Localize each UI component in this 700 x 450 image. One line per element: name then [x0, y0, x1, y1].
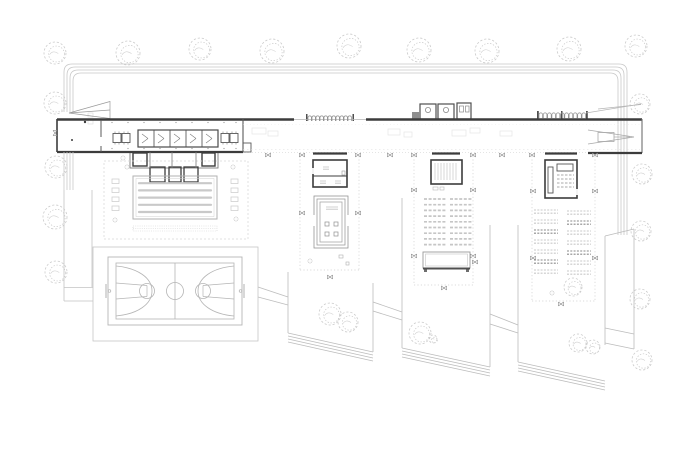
faint-furniture	[388, 129, 400, 135]
tree-canopy-icon	[49, 46, 65, 62]
table-dot-cluster	[327, 169, 328, 170]
plotC-steps	[402, 354, 490, 373]
tree-canopy-icon	[632, 350, 652, 370]
lounger	[112, 197, 119, 202]
tree	[586, 340, 600, 354]
plotD-steps	[518, 365, 605, 384]
plotC-steps	[402, 348, 490, 367]
tree-branch-icon	[569, 286, 576, 288]
table-dot-cluster	[337, 180, 338, 181]
hoop	[239, 290, 242, 293]
tree-canopy-icon	[342, 38, 359, 55]
table-dot-cluster	[336, 209, 337, 210]
three-point-arc	[198, 266, 234, 316]
shrub-icon	[307, 258, 313, 264]
reading-room-opening	[312, 215, 316, 226]
table-dot-cluster	[339, 180, 340, 181]
tree-canopy-icon	[414, 326, 430, 342]
tree-canopy-icon	[319, 303, 341, 325]
tree-branch-icon	[574, 342, 581, 344]
tree-canopy-icon	[635, 225, 649, 239]
rack-post	[586, 111, 588, 119]
tree	[189, 38, 211, 60]
column-dot	[159, 148, 160, 149]
dining-table	[122, 134, 130, 143]
bench-foot	[424, 270, 427, 273]
faint-furniture	[268, 131, 278, 136]
pavilion-fixture-circle	[443, 107, 448, 112]
tree	[429, 335, 437, 343]
table-dot-cluster	[324, 180, 325, 181]
table-dot-cluster	[330, 206, 331, 207]
table-dot-cluster	[334, 209, 335, 210]
tree-branch-icon	[122, 52, 132, 55]
table-dot-cluster	[326, 206, 327, 207]
column-dot	[223, 148, 224, 149]
column-dot	[207, 148, 208, 149]
kitchen-fixture	[142, 134, 148, 139]
tree-branch-icon	[325, 313, 334, 316]
kitchen-fixture	[174, 139, 180, 144]
table-dot-cluster	[328, 206, 329, 207]
table-dot-cluster	[325, 169, 326, 170]
grid-marker-icon	[470, 188, 475, 192]
tree-branch-icon	[51, 271, 60, 274]
tree-canopy-icon	[260, 39, 284, 63]
tree-branch-icon	[431, 339, 434, 340]
kitchen-fixture	[190, 134, 196, 139]
tree-canopy-icon	[342, 316, 356, 330]
plotD-steps	[518, 368, 605, 387]
tree	[338, 312, 358, 332]
tree-branch-icon	[50, 52, 59, 55]
grid-marker-icon	[355, 211, 360, 215]
entry-canopy-wedge	[69, 102, 110, 119]
tree-canopy-icon	[632, 164, 652, 184]
tree	[475, 39, 499, 63]
tree-canopy-icon	[50, 160, 66, 176]
tree-canopy-icon	[634, 293, 648, 307]
grid-marker-icon	[530, 189, 535, 193]
plotC-steps	[402, 351, 490, 370]
tree-canopy-icon	[338, 312, 358, 332]
tree-branch-icon	[343, 321, 351, 324]
entrance-pavilion	[438, 104, 454, 119]
lounger	[231, 206, 238, 211]
tree-branch-icon	[266, 50, 276, 53]
table-dot-cluster	[326, 209, 327, 210]
reading-room-inner	[320, 202, 342, 242]
tree-branch-icon	[195, 48, 204, 51]
kitchen-fixture	[158, 139, 164, 144]
faint-furniture	[470, 128, 480, 133]
tree-branch-icon	[51, 166, 60, 169]
tree-canopy-icon	[480, 43, 497, 60]
faint-furniture	[500, 131, 512, 136]
tree-branch-icon	[415, 332, 424, 335]
wc-block	[184, 167, 198, 182]
tree-canopy-icon	[43, 205, 67, 229]
tree	[43, 205, 67, 229]
grid-marker-icon	[387, 153, 392, 157]
court-key	[203, 297, 234, 300]
tree-canopy-icon	[409, 322, 431, 344]
tree-branch-icon	[481, 50, 491, 53]
table-dot-cluster	[327, 166, 328, 167]
tree-canopy-icon	[407, 38, 431, 62]
site-plan-drawing	[0, 0, 700, 450]
column-dot	[175, 122, 176, 123]
reading-table	[334, 232, 338, 236]
tree-canopy-icon	[564, 278, 582, 296]
reading-table	[334, 222, 338, 226]
yard-mark	[440, 187, 444, 190]
wc-block	[150, 167, 165, 182]
tree-canopy-icon	[324, 307, 340, 323]
table-dot-cluster	[335, 183, 336, 184]
bench-foot	[466, 270, 469, 273]
column-dot	[84, 121, 86, 123]
dining-table	[230, 134, 238, 143]
tree-canopy-icon	[636, 168, 650, 182]
kitchen-fixture	[174, 134, 180, 139]
tree-canopy-icon	[50, 265, 66, 281]
shrub-icon	[230, 164, 236, 170]
column-dot	[111, 148, 112, 149]
pool-plot	[104, 161, 248, 239]
table-dot-cluster	[334, 206, 335, 207]
yard-mark	[339, 255, 343, 258]
tree	[630, 289, 650, 309]
connector-plotC-plotD	[490, 314, 518, 325]
reading-room-outer	[314, 196, 348, 248]
tree-canopy-icon	[48, 209, 65, 226]
column-dot	[159, 122, 160, 123]
shrub-icon	[549, 290, 555, 296]
tree-canopy-icon	[562, 41, 579, 58]
column-dot	[127, 122, 128, 123]
entrance-pavilion	[420, 104, 436, 119]
tree	[407, 38, 431, 62]
grid-marker-icon	[558, 302, 563, 306]
tree-canopy-icon	[429, 335, 437, 343]
dining-table	[113, 134, 121, 143]
faint-furniture	[404, 132, 412, 137]
shrub-icon	[124, 164, 130, 170]
tree	[260, 39, 284, 63]
tree-branch-icon	[563, 48, 573, 51]
tree-canopy-icon	[636, 354, 650, 368]
tree	[564, 278, 582, 296]
grid-marker-icon	[592, 256, 597, 260]
column-dot	[175, 148, 176, 149]
tree-canopy-icon	[557, 37, 581, 61]
column-dot	[191, 122, 192, 123]
court-key	[116, 283, 147, 286]
tree-branch-icon	[50, 102, 59, 105]
tree	[337, 34, 361, 58]
wc-block	[169, 167, 181, 182]
shrub-icon	[233, 216, 239, 222]
three-point-arc	[116, 266, 152, 316]
lounger	[231, 179, 238, 184]
plotB-steps	[288, 339, 373, 358]
tree-canopy-icon	[265, 43, 282, 60]
plotC-steps	[402, 357, 490, 376]
column-dot	[127, 148, 128, 149]
faint-furniture	[252, 128, 266, 134]
rack-post	[353, 114, 355, 121]
plotB-steps	[288, 342, 373, 361]
stage-bench-inner	[426, 254, 468, 266]
tree-branch-icon	[590, 346, 596, 348]
tree	[557, 37, 581, 61]
lounger	[112, 206, 119, 211]
table-dot-cluster	[328, 209, 329, 210]
classroom-cabinet	[548, 167, 553, 193]
grid-marker-icon	[355, 153, 360, 157]
column-dot	[235, 148, 236, 149]
table-dot-cluster	[336, 206, 337, 207]
tree-branch-icon	[637, 359, 645, 362]
reading-table	[325, 222, 329, 226]
grid-marker-icon	[441, 286, 446, 290]
lounger	[112, 179, 119, 184]
table-dot-cluster	[322, 183, 323, 184]
connector-court-plotB	[258, 287, 288, 297]
table-dot-cluster	[325, 166, 326, 167]
rack-post	[537, 111, 539, 119]
cafeteria-annex	[243, 143, 251, 152]
plotE-bottom	[605, 343, 634, 349]
lounger	[231, 188, 238, 193]
kitchen-fixture	[206, 139, 212, 144]
tree-branch-icon	[631, 45, 640, 48]
table-dot-cluster	[332, 209, 333, 210]
column-dot	[191, 148, 192, 149]
shrub-icon	[120, 155, 126, 161]
tree-canopy-icon	[569, 334, 587, 352]
tree-branch-icon	[637, 173, 645, 176]
dining-table	[221, 134, 229, 143]
grid-marker-icon	[299, 211, 304, 215]
tree	[632, 350, 652, 370]
pavilion-fixture-circle	[425, 107, 430, 112]
table-dot-cluster	[332, 206, 333, 207]
table-dot-cluster	[322, 180, 323, 181]
grid-marker-icon	[327, 275, 332, 279]
tree-canopy-icon	[194, 42, 210, 58]
tree-canopy-icon	[44, 42, 66, 64]
plotE-top	[605, 229, 634, 236]
kitchen-counter	[138, 130, 218, 147]
lounger	[112, 188, 119, 193]
yard-mark	[346, 262, 349, 265]
architectural-site-plan	[0, 0, 700, 450]
connector-court-plotB	[258, 297, 288, 305]
tree-canopy-icon	[568, 282, 581, 295]
grid-marker-icon	[299, 153, 304, 157]
tree	[116, 41, 140, 65]
faint-furniture	[452, 130, 466, 136]
plotD-steps	[518, 371, 605, 390]
service-room-west	[133, 153, 147, 166]
grid-marker-icon	[530, 256, 535, 260]
court-enclosure	[93, 247, 258, 341]
table-dot-cluster	[330, 209, 331, 210]
lounger	[231, 197, 238, 202]
column-dot	[71, 139, 73, 141]
kitchen-fixture	[158, 134, 164, 139]
bike-rack-west	[308, 116, 351, 121]
tree-canopy-icon	[630, 39, 646, 55]
tree	[632, 164, 652, 184]
tree-canopy-icon	[116, 41, 140, 65]
roof-wedge-east	[598, 105, 641, 110]
reading-room-mid	[317, 199, 345, 245]
tree-canopy-icon	[121, 45, 138, 62]
column-dot	[235, 122, 236, 123]
plotB-steps	[288, 333, 373, 352]
tree	[569, 334, 587, 352]
rack-post	[561, 111, 563, 119]
plotD-steps	[518, 362, 605, 381]
teacher-desk	[557, 164, 573, 171]
kitchen-fixture	[206, 134, 212, 139]
grid-marker-icon	[592, 189, 597, 193]
tree-branch-icon	[49, 216, 59, 219]
plotE-inner	[605, 328, 634, 334]
reading-table	[325, 232, 329, 236]
tree-branch-icon	[635, 298, 643, 301]
room-fixture	[342, 171, 345, 175]
column-dot	[223, 122, 224, 123]
column-dot	[143, 148, 144, 149]
tree-canopy-icon	[412, 42, 429, 59]
tree	[319, 303, 341, 325]
table-dot-cluster	[320, 183, 321, 184]
pavilion-fixture	[460, 106, 464, 112]
tree-canopy-icon	[589, 343, 599, 353]
site-perimeter-line	[64, 64, 627, 235]
tree-canopy-icon	[337, 34, 361, 58]
table-dot-cluster	[324, 183, 325, 184]
kitchen-fixture	[142, 139, 148, 144]
tree-canopy-icon	[44, 92, 66, 114]
tree-canopy-icon	[189, 38, 211, 60]
court-key	[203, 283, 234, 286]
tree-branch-icon	[413, 49, 423, 52]
column-dot	[207, 122, 208, 123]
connector-plotB-plotC	[373, 311, 402, 320]
table-dot-cluster	[339, 183, 340, 184]
column-dot	[143, 122, 144, 123]
tree	[625, 35, 647, 57]
court-key	[116, 297, 147, 300]
tree-branch-icon	[636, 230, 644, 233]
table-dot-cluster	[323, 169, 324, 170]
table-dot-cluster	[335, 180, 336, 181]
table-dot-cluster	[337, 183, 338, 184]
tree-canopy-icon	[49, 96, 65, 112]
tree-canopy-icon	[625, 35, 647, 57]
tree-branch-icon	[343, 45, 353, 48]
yard-mark	[433, 187, 438, 190]
tree	[409, 322, 431, 344]
kitchen-fixture	[190, 139, 196, 144]
tree	[44, 92, 66, 114]
column-dot	[111, 122, 112, 123]
service-room-east	[202, 153, 215, 166]
tree-canopy-icon	[573, 338, 586, 351]
hoop	[108, 290, 111, 293]
table-dot-cluster	[323, 166, 324, 167]
tree-canopy-icon	[630, 289, 650, 309]
reading-room-opening	[346, 215, 350, 226]
connector-plotC-plotD	[490, 324, 518, 333]
tree	[44, 42, 66, 64]
stage-bench	[423, 252, 470, 268]
grid-marker-icon	[411, 188, 416, 192]
stage-room	[431, 160, 462, 184]
plotB-steps	[288, 336, 373, 355]
pavilion-fixture	[466, 106, 470, 112]
grid-marker-icon	[265, 153, 270, 157]
table-dot-cluster	[320, 180, 321, 181]
grid-marker-icon	[499, 153, 504, 157]
tree-canopy-icon	[475, 39, 499, 63]
connector-plotB-plotC	[373, 302, 402, 312]
rack-post	[306, 114, 308, 121]
shrub-icon	[112, 217, 118, 223]
